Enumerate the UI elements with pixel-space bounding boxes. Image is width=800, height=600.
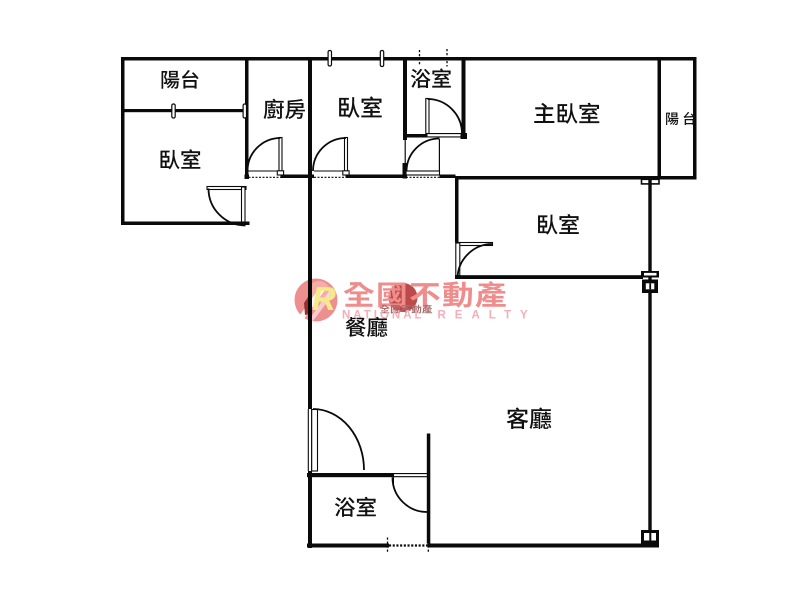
svg-text:REALTY: REALTY (438, 310, 537, 322)
svg-text:R: R (312, 280, 336, 317)
svg-text:NATIONAL: NATIONAL (342, 310, 425, 322)
